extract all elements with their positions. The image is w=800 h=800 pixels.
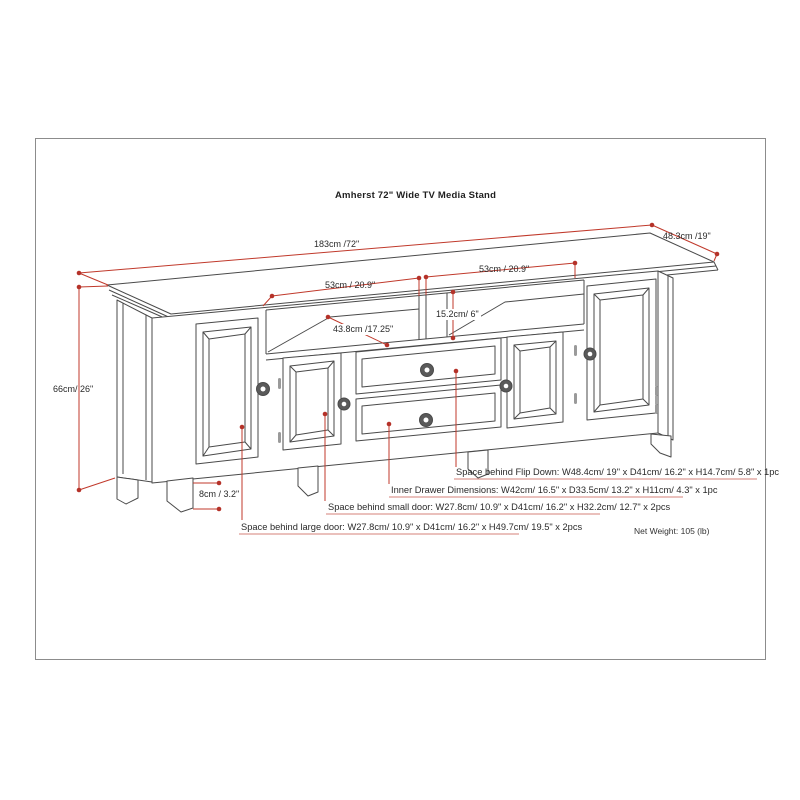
left-large-door <box>196 318 258 464</box>
note-flip-down: Space behind Flip Down: W48.4cm/ 19" x D… <box>456 467 779 478</box>
dim-label-shelf-height: 15.2cm/ 6" <box>434 309 481 320</box>
right-end-panel <box>658 271 673 440</box>
dim-label-shelf-depth: 43.8cm /17.25" <box>331 324 395 335</box>
furniture-drawing <box>0 0 800 800</box>
net-weight-label: Net Weight: 105 (lb) <box>634 526 709 537</box>
dim-label-top-depth: 48.3cm /19" <box>663 231 711 242</box>
note-small-door: Space behind small door: W27.8cm/ 10.9" … <box>328 502 670 513</box>
note-large-door: Space behind large door: W27.8cm/ 10.9" … <box>241 522 582 533</box>
dim-label-overall-height: 66cm/ 26" <box>53 384 93 395</box>
dim-label-leg-height: 8cm / 3.2" <box>199 489 239 500</box>
left-small-door <box>283 353 341 450</box>
left-end-panel <box>117 300 152 504</box>
diagram-page: Amherst 72" Wide TV Media Stand 183cm /7… <box>0 0 800 800</box>
right-end-foot <box>651 434 671 457</box>
diagram-title: Amherst 72" Wide TV Media Stand <box>335 190 496 201</box>
dim-label-top-width: 183cm /72" <box>314 239 359 250</box>
right-small-door <box>507 332 563 428</box>
dim-label-shelf-right-width: 53cm / 20.9" <box>479 264 529 275</box>
left-outer-foot <box>117 477 138 504</box>
note-inner-drawer: Inner Drawer Dimensions: W42cm/ 16.5" x … <box>391 485 717 496</box>
dim-label-shelf-left-width: 53cm / 20.9" <box>325 280 375 291</box>
right-large-door <box>587 279 656 420</box>
